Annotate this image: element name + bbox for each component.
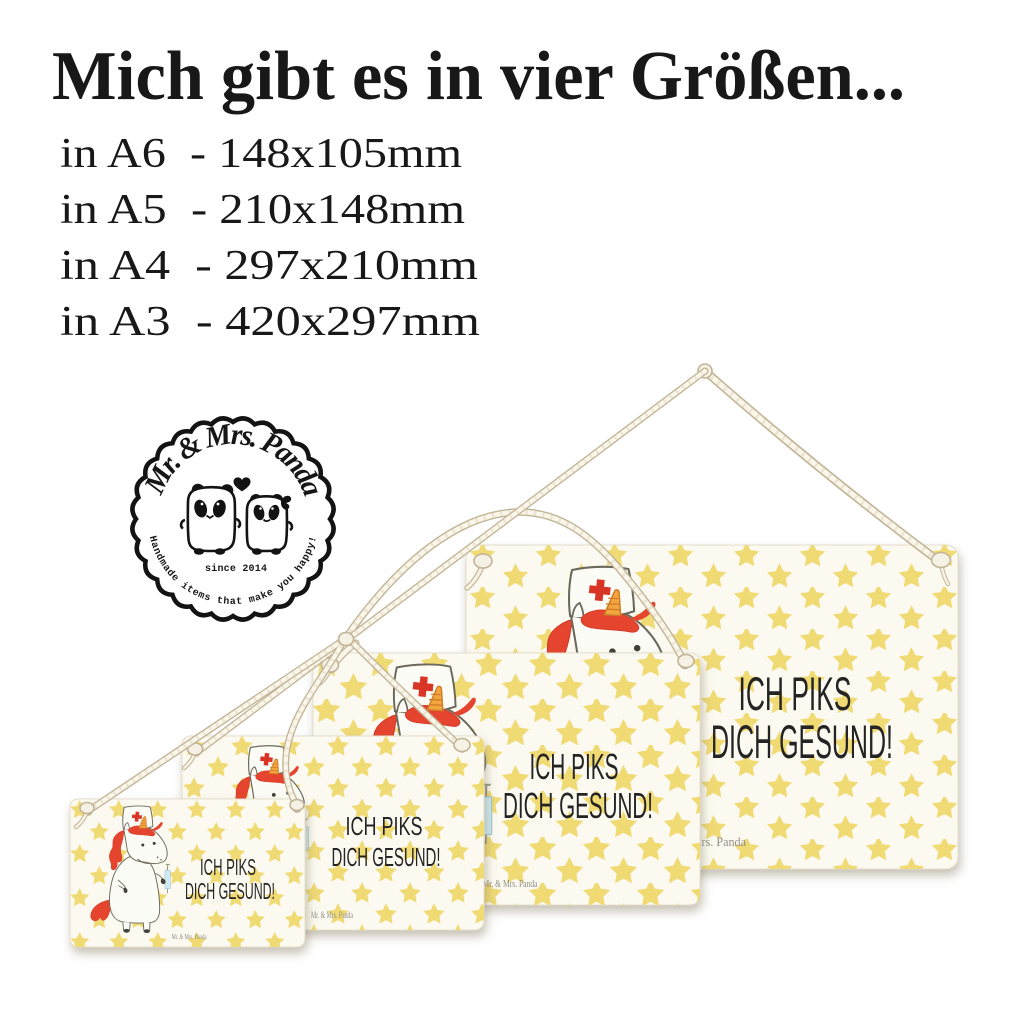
svg-text:DICH GESUND!: DICH GESUND! [332,842,441,872]
svg-text:Mr. & Mrs. Panda: Mr. & Mrs. Panda [311,910,353,920]
svg-text:Mr. & Mrs. Panda: Mr. & Mrs. Panda [172,932,207,941]
svg-text:since 2014: since 2014 [205,563,267,575]
svg-text:in A6 - 148x105mm: in A6 - 148x105mm [60,131,462,177]
svg-text:DICH GESUND!: DICH GESUND! [503,785,653,826]
svg-text:in A3 - 420x297mm: in A3 - 420x297mm [60,299,480,345]
svg-text:ICH PIKS: ICH PIKS [346,811,423,841]
svg-text:in A5 - 210x148mm: in A5 - 210x148mm [60,187,465,233]
svg-text:ICH PIKS: ICH PIKS [739,667,852,720]
svg-text:in A4 - 297x210mm: in A4 - 297x210mm [60,243,478,289]
svg-text:Mich gibt es in vier Größen...: Mich gibt es in vier Größen... [52,38,905,115]
svg-text:Mr. & Mrs. Panda: Mr. & Mrs. Panda [483,878,538,890]
svg-text:DICH GESUND!: DICH GESUND! [711,715,893,768]
svg-text:ICH PIKS: ICH PIKS [200,854,256,880]
svg-text:DICH GESUND!: DICH GESUND! [185,878,275,904]
svg-text:ICH PIKS: ICH PIKS [530,746,619,787]
